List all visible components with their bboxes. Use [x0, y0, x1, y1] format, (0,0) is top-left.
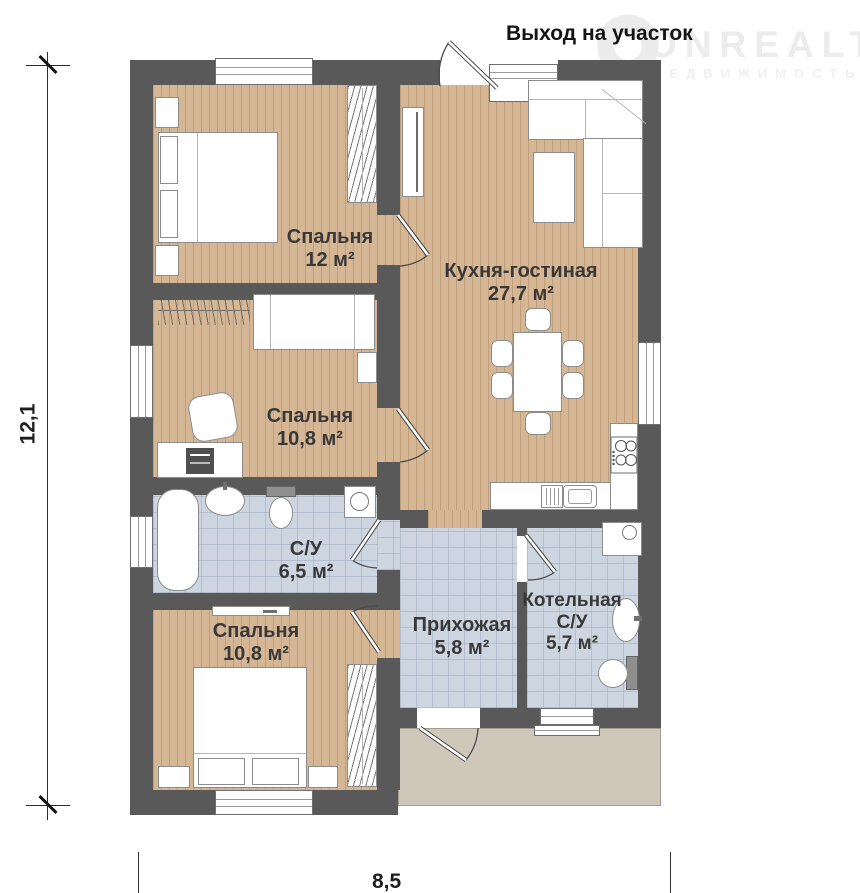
window — [215, 58, 313, 85]
pillow — [160, 190, 178, 238]
office-chair — [186, 390, 239, 443]
room-area: 10,8 м² — [213, 643, 299, 666]
sink-tap — [634, 616, 642, 621]
room-name: Спальня — [267, 405, 353, 428]
computer — [186, 448, 214, 474]
chair — [525, 412, 551, 435]
washer-drum — [350, 492, 369, 511]
exit-label: Выход на участок — [506, 22, 693, 46]
pillow — [252, 758, 299, 785]
dining-table — [513, 332, 562, 412]
room-name: Кухня-гостиная — [444, 260, 597, 283]
dimension-extension — [670, 852, 671, 893]
bedroom1-door — [394, 210, 438, 272]
chair — [562, 372, 584, 399]
bathtub — [157, 489, 199, 591]
room-label-bedroom3: Спальня 10,8 м² — [213, 620, 299, 666]
bathroom-door — [342, 514, 384, 574]
chair — [491, 372, 513, 399]
nightstand — [308, 766, 338, 788]
wall — [400, 510, 428, 528]
window-sill — [534, 725, 600, 736]
window-frame-line — [216, 799, 312, 800]
sink-basin — [568, 489, 592, 504]
room-label-kitchen: Кухня-гостиная 27,7 м² — [444, 260, 597, 306]
toilet-tank — [266, 486, 296, 497]
wall — [377, 85, 400, 215]
watermark-subtitle: НЕДВИЖИМОСТЬ — [652, 66, 860, 81]
room-area: 12 м² — [287, 249, 373, 272]
nightstand — [357, 352, 377, 383]
room-label-bedroom1: Спальня 12 м² — [287, 226, 373, 272]
bed-seam — [197, 133, 198, 242]
bed-seam — [194, 753, 306, 754]
room-label-bathroom: С/У 6,5 м² — [279, 538, 334, 584]
boiler-door — [520, 528, 562, 588]
room-name: Спальня — [287, 226, 373, 249]
kitchen-sink — [563, 485, 597, 508]
window-frame-line — [653, 343, 654, 424]
room-area: 5,7 м² — [522, 633, 621, 655]
wall — [130, 60, 153, 815]
window — [130, 345, 153, 418]
shelf-mark — [263, 610, 277, 613]
bedroom3-door — [342, 600, 384, 662]
window-frame-line — [541, 716, 593, 717]
room-area: 6,5 м² — [279, 561, 334, 584]
boiler-dial — [622, 525, 637, 540]
window — [215, 790, 313, 815]
room-area: 10,8 м² — [267, 428, 353, 451]
room-label-boiler: Котельная С/У 5,7 м² — [522, 590, 621, 655]
nightstand — [155, 245, 179, 276]
dimension-extension — [138, 852, 139, 893]
window-frame-line — [216, 806, 312, 807]
bathroom-sink — [205, 486, 245, 516]
single-bed — [253, 294, 375, 350]
tv-screen — [416, 112, 418, 192]
pillow — [160, 136, 178, 184]
sofa-seam — [602, 193, 642, 194]
stove — [610, 436, 638, 474]
dimension-width: 8,5 — [372, 870, 401, 893]
kitchen-hall-threshold — [428, 510, 482, 528]
sofa — [528, 80, 643, 140]
toilet-bowl — [598, 659, 628, 688]
window-frame-line — [145, 346, 146, 417]
chair — [525, 308, 551, 331]
window-frame-line — [535, 730, 599, 731]
washing-machine — [344, 486, 376, 518]
window-frame-line — [646, 343, 647, 424]
toilet-bowl — [269, 497, 293, 529]
window-frame-line — [216, 74, 312, 75]
room-name: С/У — [279, 538, 334, 561]
sofa-seam — [585, 99, 586, 139]
nightstand — [158, 766, 190, 788]
wall-shelf — [212, 606, 290, 616]
room-label-bedroom2: Спальня 10,8 м² — [267, 405, 353, 451]
window-frame-line — [138, 517, 139, 567]
pillow — [198, 758, 245, 785]
window — [638, 342, 661, 425]
dimension-line-vertical — [47, 52, 48, 820]
bed-seam — [270, 295, 271, 349]
chair — [562, 340, 584, 367]
sofa — [583, 138, 643, 248]
wardrobe-rail — [362, 88, 363, 200]
nightstand — [155, 97, 179, 128]
room-area: 27,7 м² — [444, 283, 597, 306]
room-name: Котельная — [522, 590, 621, 612]
room-name-2: С/У — [522, 612, 621, 634]
window-frame-line — [138, 346, 139, 417]
dish-drainer — [541, 485, 563, 508]
wardrobe — [347, 664, 377, 787]
exit-door — [433, 28, 505, 92]
entry-door — [412, 722, 484, 768]
dimension-height: 12,1 — [16, 404, 40, 445]
room-name: Спальня — [213, 620, 299, 643]
window-frame-line — [216, 67, 312, 68]
bed-seam — [354, 295, 355, 349]
tv-stand — [402, 107, 424, 197]
window — [130, 516, 153, 568]
clothes-rail — [158, 296, 250, 325]
wardrobe — [347, 85, 377, 203]
bedroom2-door — [394, 404, 438, 468]
room-label-hallway: Прихожая 5,8 м² — [413, 614, 512, 660]
rail-bar — [158, 310, 250, 311]
wardrobe-rail — [362, 667, 363, 784]
sink-tap — [223, 482, 227, 490]
coffee-table — [533, 152, 575, 223]
floor-plan: ONREALT НЕДВИЖИМОСТЬ Выход на участок — [0, 0, 860, 893]
window-frame-line — [145, 517, 146, 567]
boiler — [602, 522, 642, 556]
room-area: 5,8 м² — [413, 637, 512, 660]
chair — [491, 340, 513, 367]
room-name: Прихожая — [413, 614, 512, 637]
window — [540, 708, 594, 725]
